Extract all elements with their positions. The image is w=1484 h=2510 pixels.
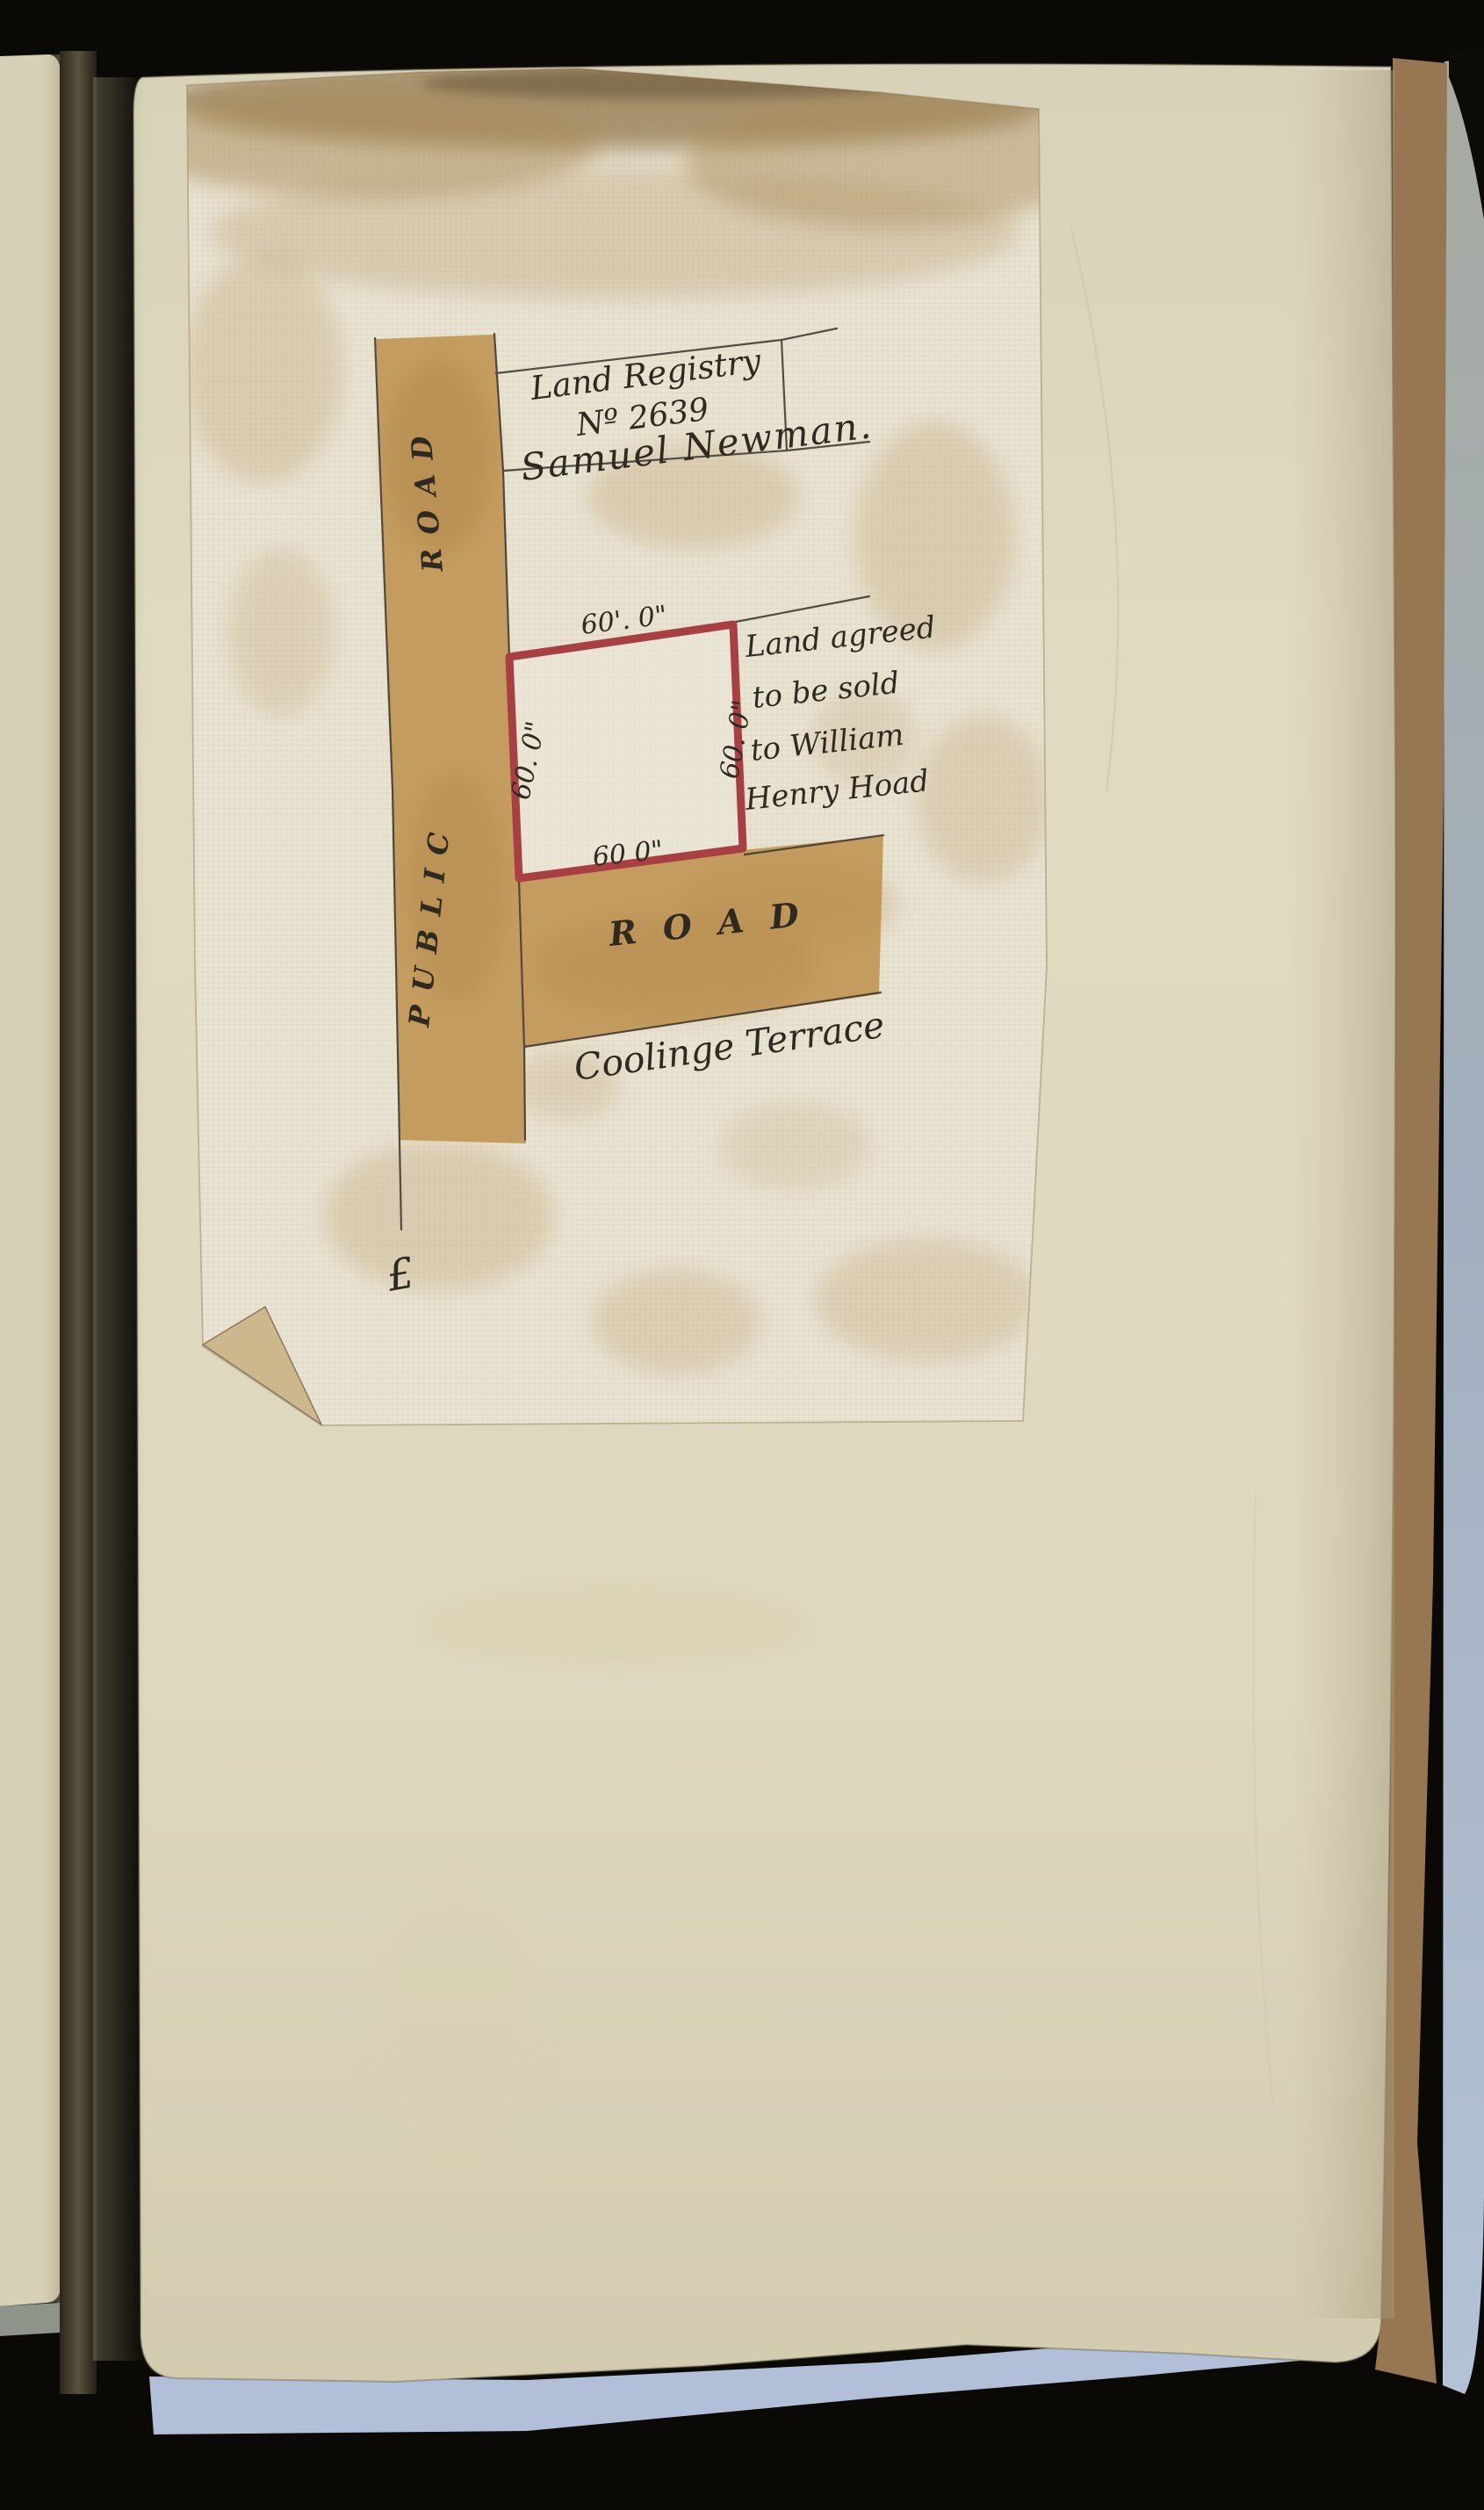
scan-canvas: Land Registry Nº 2639 Samuel Newman. 60'… xyxy=(0,0,1484,2510)
page-stack-edge-gray xyxy=(1443,56,1484,2394)
linen-map-sheet: Land Registry Nº 2639 Samuel Newman. 60'… xyxy=(140,53,1089,1425)
page-stain xyxy=(421,1585,808,1664)
page-stain xyxy=(378,1879,536,2196)
page-right-shade xyxy=(1291,70,1394,2319)
book-scan: Land Registry Nº 2639 Samuel Newman. 60'… xyxy=(0,0,1484,2510)
opposite-page-shade xyxy=(42,54,61,2303)
opposite-page-bottom-edge xyxy=(0,2303,60,2336)
page-gutter-shade xyxy=(93,77,146,2361)
gutter-shadow xyxy=(60,51,97,2394)
